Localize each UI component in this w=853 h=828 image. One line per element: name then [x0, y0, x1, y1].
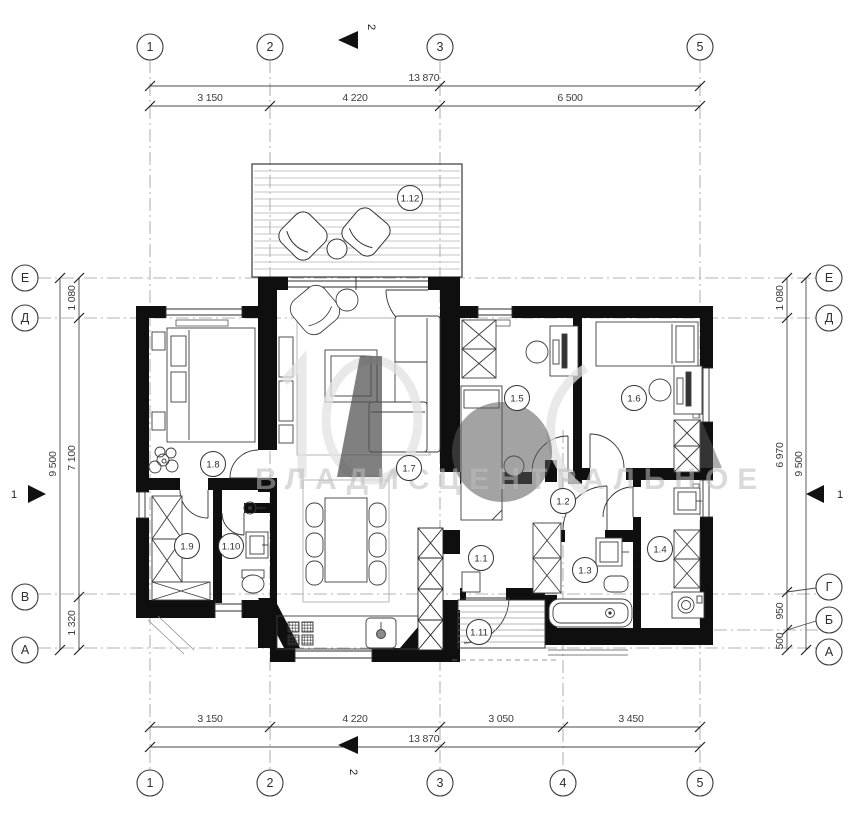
window-room15-top — [478, 306, 512, 318]
axis-right-e: Е — [825, 271, 833, 285]
dim-top-total: 13 870 — [409, 72, 440, 84]
terrace — [252, 164, 462, 277]
dim-left-seg2: 7 100 — [66, 445, 78, 471]
door-bedroom-18 — [230, 450, 258, 478]
dim-right-seg2: 6 970 — [774, 442, 786, 468]
room-label-1.11: 1.11 — [467, 620, 492, 645]
floor-plan-drawing: 13 870 3 150 4 220 6 500 3 150 4 220 3 0… — [0, 0, 853, 828]
axis-top-2: 2 — [267, 40, 274, 54]
pouf-symbol — [336, 289, 358, 311]
axis-right-b: Б — [825, 613, 833, 627]
kitchen-sink-symbol — [366, 618, 396, 648]
section-arrow-bottom-icon — [338, 736, 358, 754]
radiator-icon — [176, 320, 228, 326]
axis-bottom-5: 5 — [697, 776, 704, 790]
section-arrow-top-icon — [338, 31, 358, 49]
section-label-left: 1 — [11, 489, 17, 501]
desk-15-symbol — [526, 326, 578, 376]
room-label-1.6: 1.6 — [622, 386, 647, 411]
axis-top-5: 5 — [697, 40, 704, 54]
window-bedroom-top — [166, 306, 242, 318]
room-number: 1.9 — [180, 542, 193, 553]
round-table-symbol — [327, 239, 347, 259]
dim-right-seg4: 500 — [774, 632, 786, 649]
room-number: 1.4 — [653, 545, 666, 556]
axis-bottom-4: 4 — [560, 776, 567, 790]
room-label-1.8: 1.8 — [201, 452, 226, 477]
axis-bottom-3: 3 — [437, 776, 444, 790]
room-label-1.4: 1.4 — [648, 537, 673, 562]
room-label-1.12: 1.12 — [398, 186, 423, 211]
double-bed-symbol — [152, 328, 255, 442]
axis-top-3: 3 — [437, 40, 444, 54]
axis-bottom-2: 2 — [267, 776, 274, 790]
bathtub-symbol — [549, 599, 632, 627]
toilet-13-symbol — [604, 576, 628, 592]
room-number: 1.1 — [474, 554, 487, 565]
dim-right-total: 9 500 — [793, 451, 805, 477]
bed-16-symbol — [596, 322, 698, 366]
room-number: 1.10 — [222, 542, 241, 553]
axis-right-d: Д — [825, 311, 834, 325]
axis-left-e: Е — [21, 271, 29, 285]
wardrobe-corridor-symbol — [533, 523, 561, 593]
room-label-1.1: 1.1 — [469, 546, 494, 571]
dim-bottom-total: 13 870 — [409, 733, 440, 745]
room-number: 1.7 — [402, 464, 415, 475]
axis-right-g: Г — [826, 580, 833, 594]
pantry-cabinet-symbol — [418, 528, 443, 650]
room-number: 1.8 — [206, 460, 219, 471]
room-number: 1.5 — [510, 394, 523, 405]
plant-symbol — [149, 447, 178, 473]
entry-steps — [548, 650, 628, 655]
room-label-1.9: 1.9 — [175, 534, 200, 559]
floor-plan-page: 13 870 3 150 4 220 6 500 3 150 4 220 3 0… — [0, 0, 853, 828]
tv-unit-symbol — [279, 337, 293, 443]
dim-bottom-seg4: 3 450 — [618, 713, 644, 725]
wardrobe-15-symbol — [462, 320, 496, 378]
section-label-right: 1 — [837, 489, 843, 501]
room-number: 1.12 — [401, 194, 420, 205]
dim-left-seg1: 1 080 — [66, 285, 78, 311]
armchair-symbol — [285, 280, 344, 339]
section-label-top: 2 — [365, 24, 377, 30]
room-number: 1.6 — [627, 394, 640, 405]
window-kitchen-bay — [295, 648, 372, 662]
dim-bottom-seg3: 3 050 — [488, 713, 514, 725]
axis-left-a: А — [21, 643, 30, 657]
shoe-cabinet-symbol — [462, 572, 480, 592]
washing-machine-symbol — [672, 592, 704, 618]
door-room19 — [180, 490, 208, 518]
dim-bottom-seg2: 4 220 — [342, 713, 368, 725]
section-arrow-left-icon — [28, 485, 46, 503]
room-label-1.5: 1.5 — [505, 386, 530, 411]
dim-left-seg3: 1 320 — [66, 610, 78, 636]
section-label-bottom: 2 — [347, 769, 359, 775]
sink-110-symbol — [246, 532, 268, 558]
axis-right-a: А — [825, 645, 834, 659]
room-label-1.3: 1.3 — [573, 558, 598, 583]
room-number: 1.3 — [578, 566, 591, 577]
axis-left-v: В — [21, 590, 29, 604]
room-number: 1.2 — [556, 497, 569, 508]
axis-top-1: 1 — [147, 40, 154, 54]
door-room110 — [222, 513, 244, 535]
window-left-wall — [136, 492, 149, 518]
toilet-110-symbol — [242, 570, 264, 593]
wardrobe-14-symbol — [674, 530, 700, 588]
dim-right-seg3: 950 — [774, 602, 786, 619]
dim-top-seg3: 6 500 — [557, 92, 583, 104]
dim-top-seg1: 3 150 — [197, 92, 223, 104]
axis-left-d: Д — [21, 311, 30, 325]
dim-right-seg1: 1 080 — [774, 285, 786, 311]
desk-16-symbol — [649, 366, 702, 414]
room-label-1.2: 1.2 — [551, 489, 576, 514]
dining-table-symbol — [325, 498, 367, 582]
dim-top-seg2: 4 220 — [342, 92, 368, 104]
sink-13-symbol — [596, 538, 629, 566]
room-label-1.10: 1.10 — [219, 534, 244, 559]
room-label-1.7: 1.7 — [397, 456, 422, 481]
watermark-text: ВЛАДИСЦЕНТРАЛЬНОЕ — [255, 463, 766, 496]
section-arrow-right-icon — [806, 485, 824, 503]
room-number: 1.11 — [470, 628, 488, 639]
dim-bottom-seg1: 3 150 — [197, 713, 223, 725]
axis-bottom-1: 1 — [147, 776, 154, 790]
dim-left-total: 9 500 — [47, 451, 59, 477]
